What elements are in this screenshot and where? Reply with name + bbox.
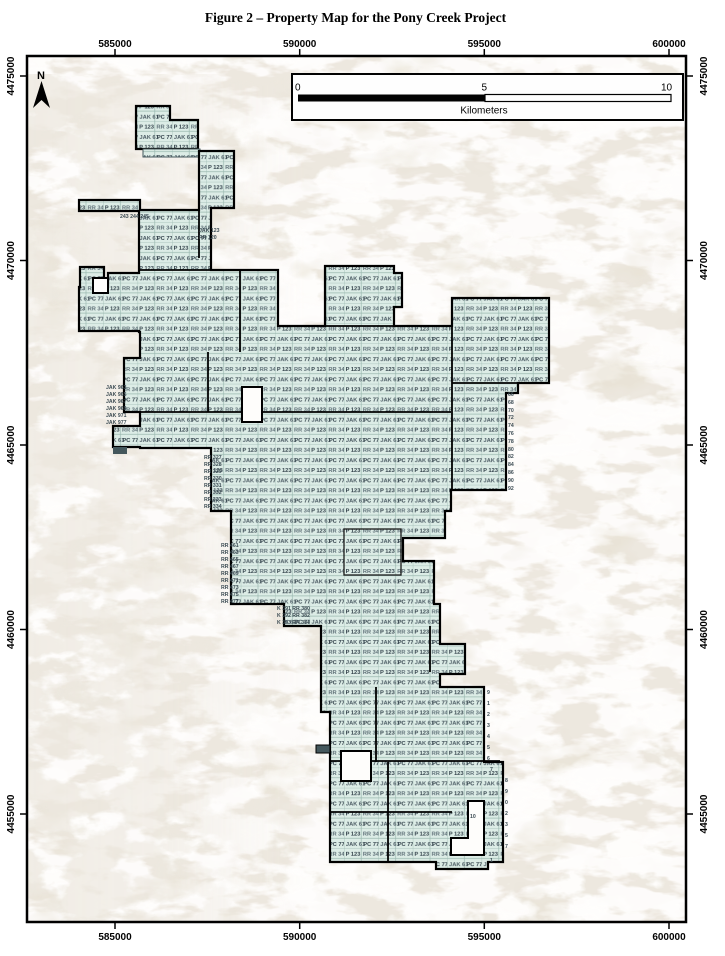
svg-text:RR 120: RR 120 xyxy=(199,235,217,241)
svg-text:RR 465: RR 465 xyxy=(221,557,239,563)
svg-text:595000: 595000 xyxy=(468,39,502,50)
svg-text:590000: 590000 xyxy=(283,39,317,50)
svg-text:RR 473: RR 473 xyxy=(221,585,239,591)
svg-text:RR 334: RR 334 xyxy=(204,504,222,510)
svg-text:5: 5 xyxy=(505,833,508,839)
svg-text:4465000: 4465000 xyxy=(6,425,17,464)
svg-text:RR 469: RR 469 xyxy=(221,571,239,577)
svg-text:595000: 595000 xyxy=(468,932,502,943)
svg-text:4475000: 4475000 xyxy=(6,56,17,95)
svg-text:RR 327: RR 327 xyxy=(204,455,222,461)
svg-text:72: 72 xyxy=(508,415,514,421)
svg-text:RR 330: RR 330 xyxy=(204,476,222,482)
svg-text:10: 10 xyxy=(470,814,476,820)
svg-text:0: 0 xyxy=(505,800,508,806)
svg-text:4455000: 4455000 xyxy=(6,794,17,833)
svg-text:3: 3 xyxy=(487,723,490,729)
svg-text:84: 84 xyxy=(508,462,514,468)
svg-text:585000: 585000 xyxy=(98,932,132,943)
svg-text:90: 90 xyxy=(508,478,514,484)
svg-text:82: 82 xyxy=(508,454,514,460)
svg-text:2: 2 xyxy=(487,712,490,718)
svg-text:K 392 RR 382: K 392 RR 382 xyxy=(277,613,310,619)
svg-text:3: 3 xyxy=(505,822,508,828)
svg-text:RR 331: RR 331 xyxy=(204,483,222,489)
svg-text:70: 70 xyxy=(508,408,514,414)
svg-text:JAK 967: JAK 967 xyxy=(106,399,127,405)
svg-text:7: 7 xyxy=(490,767,493,773)
svg-text:4460000: 4460000 xyxy=(6,610,17,649)
svg-text:K 393 RR 384: K 393 RR 384 xyxy=(277,620,310,626)
svg-text:JAK 965: JAK 965 xyxy=(106,392,127,398)
svg-text:RR 329: RR 329 xyxy=(204,469,222,475)
svg-text:JAK 971: JAK 971 xyxy=(106,413,127,419)
svg-text:RR 463: RR 463 xyxy=(221,550,239,556)
svg-text:80: 80 xyxy=(508,447,514,453)
svg-text:K 391 RR 380: K 391 RR 380 xyxy=(277,606,310,612)
svg-text:RR 332: RR 332 xyxy=(204,490,222,496)
svg-text:7: 7 xyxy=(505,844,508,850)
svg-text:RR 477: RR 477 xyxy=(221,599,239,605)
svg-text:RR 333: RR 333 xyxy=(204,497,222,503)
svg-text:RR 467: RR 467 xyxy=(221,564,239,570)
svg-text:86: 86 xyxy=(508,470,514,476)
svg-text:4465000: 4465000 xyxy=(699,425,710,464)
svg-text:4470000: 4470000 xyxy=(6,241,17,280)
svg-text:4: 4 xyxy=(487,734,490,740)
svg-text:2: 2 xyxy=(505,811,508,817)
svg-text:66: 66 xyxy=(508,392,514,398)
svg-text:5: 5 xyxy=(482,83,488,94)
svg-text:RR 461: RR 461 xyxy=(221,543,239,549)
svg-text:0: 0 xyxy=(295,83,301,94)
svg-text:RR 475: RR 475 xyxy=(221,592,239,598)
svg-text:N: N xyxy=(37,70,45,82)
svg-text:76: 76 xyxy=(508,431,514,437)
svg-text:JAK 977: JAK 977 xyxy=(106,420,127,426)
svg-text:600000: 600000 xyxy=(652,932,686,943)
svg-text:78: 78 xyxy=(508,439,514,445)
svg-text:9: 9 xyxy=(487,690,490,696)
svg-text:585000: 585000 xyxy=(98,39,132,50)
svg-text:74: 74 xyxy=(508,423,514,429)
svg-text:1: 1 xyxy=(487,701,490,707)
svg-text:4470000: 4470000 xyxy=(699,241,710,280)
svg-text:9: 9 xyxy=(505,789,508,795)
svg-text:590000: 590000 xyxy=(283,932,317,943)
svg-text:JAK 969: JAK 969 xyxy=(106,406,127,412)
svg-text:4455000: 4455000 xyxy=(699,794,710,833)
svg-text:Kilometers: Kilometers xyxy=(460,106,507,117)
svg-text:6: 6 xyxy=(487,756,490,762)
svg-text:10: 10 xyxy=(661,83,673,94)
svg-text:4460000: 4460000 xyxy=(699,610,710,649)
svg-text:4475000: 4475000 xyxy=(699,56,710,95)
svg-text:243 244 245: 243 244 245 xyxy=(120,214,149,220)
svg-text:JAK 123: JAK 123 xyxy=(199,228,220,234)
svg-text:8: 8 xyxy=(505,778,508,784)
svg-text:5: 5 xyxy=(487,745,490,751)
svg-text:RR 328: RR 328 xyxy=(204,462,222,468)
svg-text:RR 471: RR 471 xyxy=(221,578,239,584)
svg-text:92: 92 xyxy=(508,486,514,492)
svg-text:68: 68 xyxy=(508,400,514,406)
svg-text:1: 1 xyxy=(490,858,493,864)
svg-text:600000: 600000 xyxy=(652,39,686,50)
svg-text:JAK 963: JAK 963 xyxy=(106,385,127,391)
